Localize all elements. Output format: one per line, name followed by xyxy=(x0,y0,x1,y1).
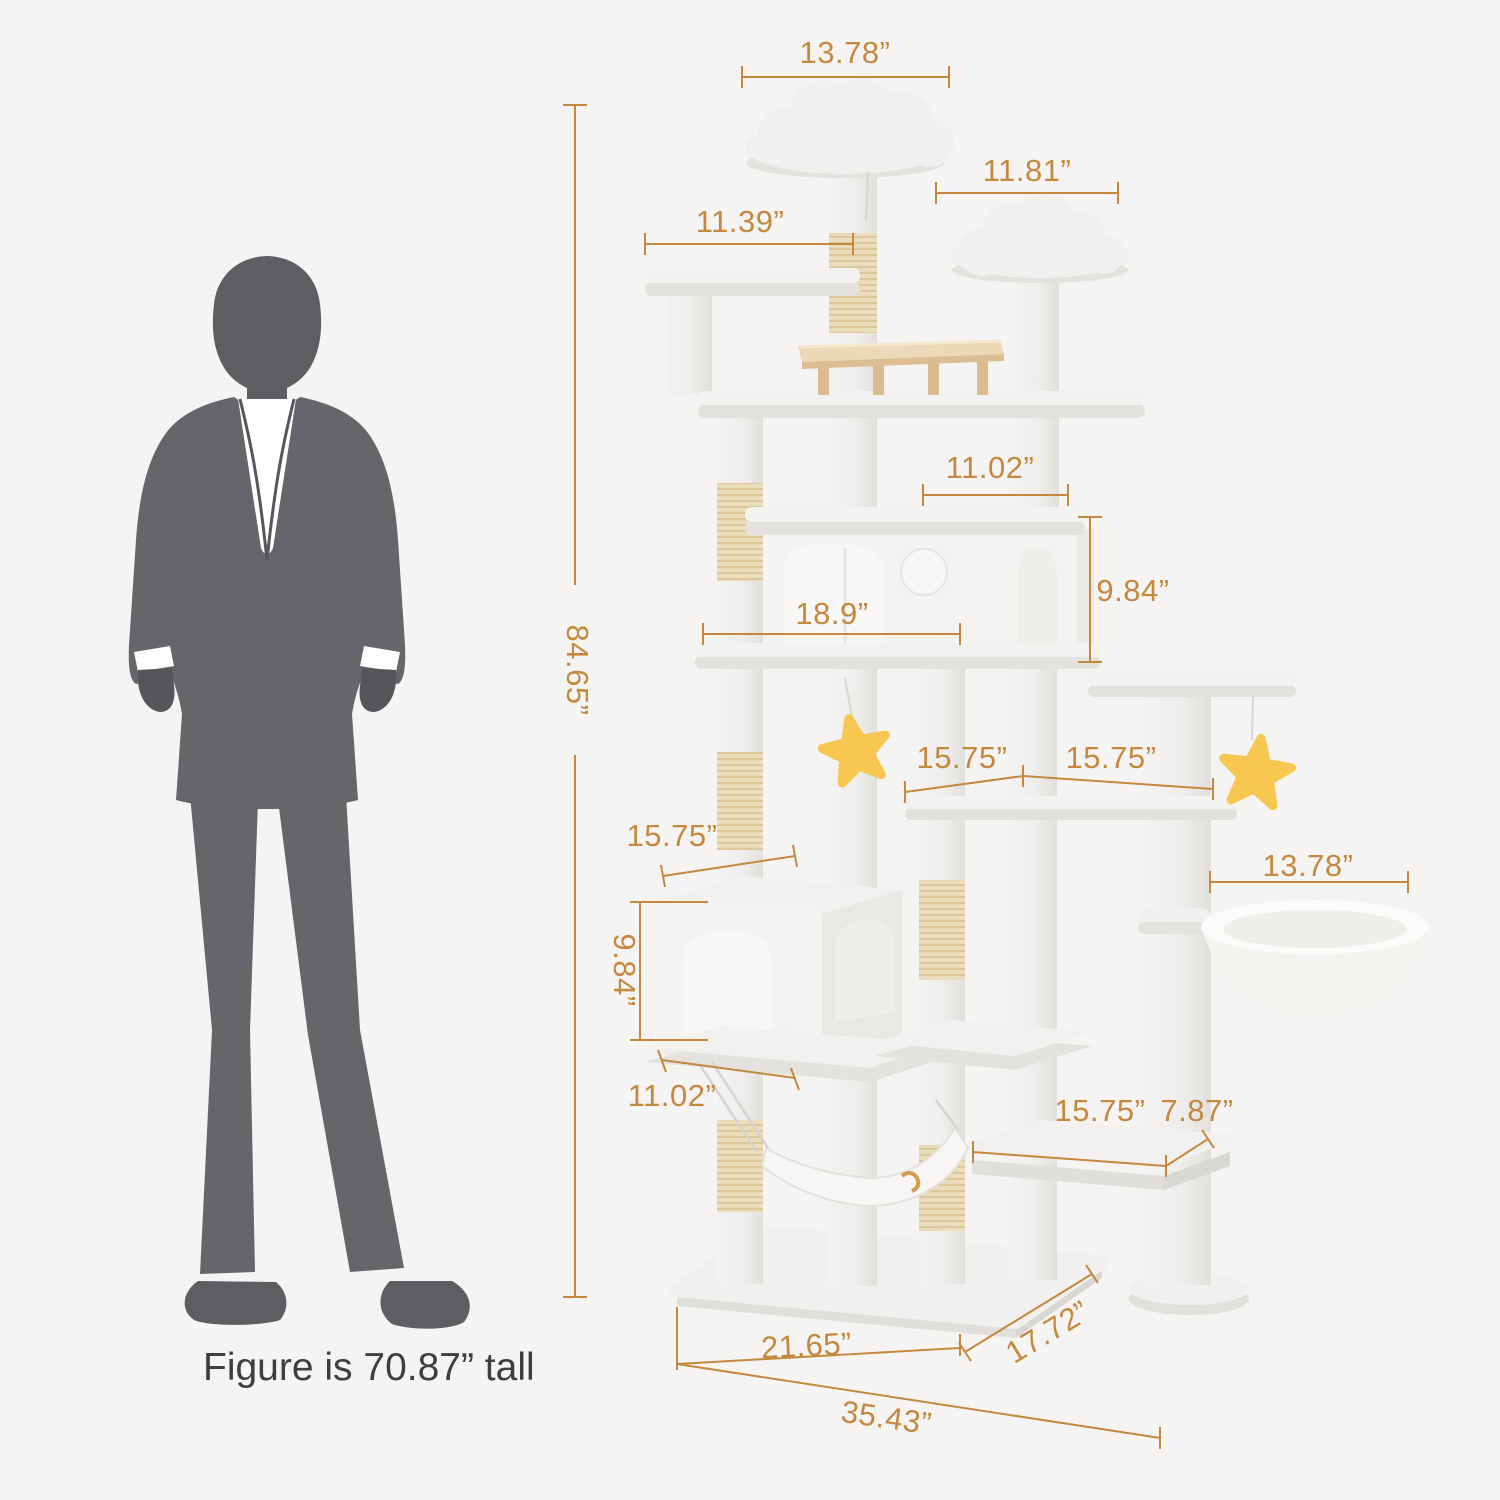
silhouette-shoe-left xyxy=(185,1281,287,1325)
dimension-label: 21.65” xyxy=(760,1326,853,1366)
dimension-label: 9.84” xyxy=(607,933,642,1006)
top-right-platform xyxy=(1088,673,1296,697)
dimension-middle-shelf-right-width: 15.75” xyxy=(1066,740,1157,775)
dimension-label: 18.9” xyxy=(795,596,868,631)
dimension-label: 13.78” xyxy=(1263,848,1354,883)
dimension-label: 7.87” xyxy=(1160,1093,1233,1128)
diagram-canvas: Figure is 70.87” tall xyxy=(0,0,1500,1500)
dimension-label: 15.75” xyxy=(1055,1093,1146,1128)
silhouette-head xyxy=(213,256,321,393)
figure-caption: Figure is 70.87” tall xyxy=(203,1346,535,1389)
lower-condo-side-arch xyxy=(835,920,895,1022)
upper-condo-roof xyxy=(745,507,1085,535)
dimension-label: 9.84” xyxy=(1096,573,1169,608)
sisal-wrap xyxy=(717,752,763,850)
silhouette-shoe-right xyxy=(381,1281,470,1329)
dimension-label: 15.75” xyxy=(917,740,1008,775)
upper-condo-right-arch xyxy=(1018,548,1057,648)
full-width-platform xyxy=(698,391,1145,418)
condo-right-post xyxy=(1009,664,1057,1280)
dimension-label: 84.65” xyxy=(560,625,595,716)
upper-left-platform xyxy=(645,268,860,296)
upper-left-support-post xyxy=(667,293,712,395)
dimension-label: 11.02” xyxy=(946,450,1035,485)
upper-condo-window xyxy=(901,549,947,595)
dimension-label: 11.39” xyxy=(696,204,785,239)
toy-string xyxy=(1252,697,1253,740)
dimension-label: 11.02” xyxy=(628,1078,717,1113)
cat-tree-dimension-diagram: Figure is 70.87” tall xyxy=(0,0,1500,1500)
dimension-label: 15.75” xyxy=(627,818,718,853)
dimension-label: 11.81” xyxy=(983,153,1072,188)
middle-shelf xyxy=(905,796,1237,820)
upper-condo-floor xyxy=(695,643,1100,669)
sisal-wrap xyxy=(919,880,965,980)
dimension-label: 13.78” xyxy=(800,35,891,70)
sisal-wrap xyxy=(717,1120,763,1212)
dimension-label: 15.75” xyxy=(1066,740,1157,775)
